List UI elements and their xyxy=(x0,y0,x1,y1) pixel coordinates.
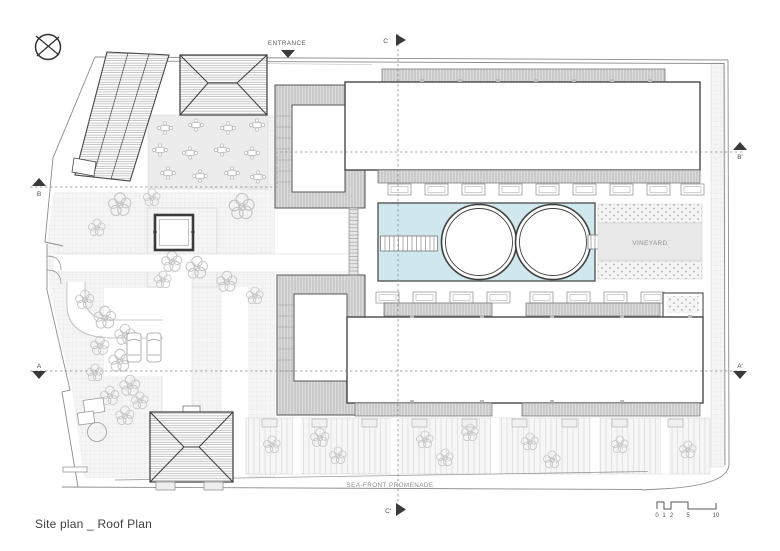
svg-text:C': C' xyxy=(385,508,391,515)
svg-text:C: C xyxy=(383,38,388,45)
section-marker-a: A xyxy=(32,363,46,379)
scale-tick: 2 xyxy=(670,513,674,519)
main-building-north xyxy=(345,69,704,195)
promenade-label: SEA-FRONT PROMENADE xyxy=(346,482,433,489)
vineyard-label: VINEYARD xyxy=(632,240,667,247)
drawing-title: Site plan _ Roof Plan xyxy=(35,517,152,531)
section-marker-c: C xyxy=(383,34,406,46)
entrance-label: ENTRANCE xyxy=(268,40,306,47)
svg-text:A: A xyxy=(37,363,42,370)
stair-connector xyxy=(349,208,358,275)
svg-text:A': A' xyxy=(737,363,743,370)
section-marker-c-prime: C' xyxy=(385,503,406,516)
circular-pool-1 xyxy=(442,205,517,280)
hip-roof-building-north xyxy=(180,55,267,115)
vineyard: VINEYARD xyxy=(598,204,702,279)
scale-tick: 5 xyxy=(686,513,690,519)
section-marker-a-prime: A' xyxy=(733,363,747,379)
scale-tick: 1 xyxy=(662,513,666,519)
scale-tick: 10 xyxy=(713,513,720,519)
skylight-row-north xyxy=(388,184,704,195)
entrance-arrow-icon xyxy=(281,50,295,58)
promenade-gardens xyxy=(246,418,710,474)
section-marker-b: B xyxy=(32,178,46,198)
site-plan-drawing: SEA-FRONT PROMENADE xyxy=(0,0,780,551)
site-plan-document: SEA-FRONT PROMENADE xyxy=(0,0,780,551)
north-arrow-icon xyxy=(36,35,61,60)
svg-text:B': B' xyxy=(737,154,743,161)
pool-deck xyxy=(378,203,600,281)
entrance-marker: ENTRANCE xyxy=(268,40,306,58)
skylight-row-south xyxy=(376,292,664,303)
scale-bar: 0 1 2 5 10 xyxy=(655,502,720,519)
scale-tick: 0 xyxy=(655,513,659,519)
hip-roof-building-south xyxy=(150,406,233,490)
main-building-south xyxy=(347,292,703,416)
cafe-terrace xyxy=(148,115,268,189)
section-marker-b-prime: B' xyxy=(733,142,747,161)
plaza-pavilion xyxy=(153,215,195,250)
svg-text:B: B xyxy=(37,191,41,198)
pool-boardwalk xyxy=(381,236,438,251)
circular-pool-2 xyxy=(516,205,591,280)
